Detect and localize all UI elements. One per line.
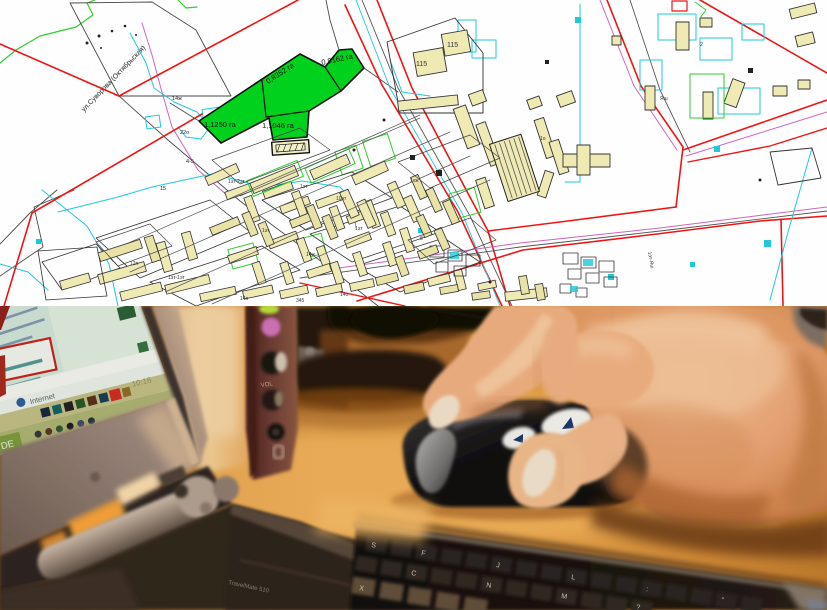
- svg-text:14о: 14о: [340, 292, 349, 298]
- svg-text:8: 8: [420, 236, 423, 242]
- svg-text:1,1250 га: 1,1250 га: [204, 120, 237, 129]
- svg-text:15: 15: [160, 186, 166, 192]
- svg-text:115: 115: [447, 42, 458, 49]
- svg-text:12п: 12п: [130, 261, 139, 267]
- svg-text:Яш: Яш: [660, 96, 668, 102]
- svg-text:14п: 14п: [240, 296, 249, 302]
- svg-text:4-5: 4-5: [186, 159, 194, 165]
- svg-text:22о: 22о: [180, 130, 189, 136]
- svg-text:1эт-2эт: 1эт-2эт: [228, 179, 245, 185]
- svg-text:14ж: 14ж: [172, 96, 182, 102]
- svg-text:115: 115: [416, 61, 427, 68]
- svg-text:1хж: 1хж: [410, 178, 419, 184]
- svg-text:1о: 1о: [540, 136, 546, 142]
- svg-text:14ж: 14ж: [306, 252, 316, 258]
- svg-text:10эт: 10эт: [336, 196, 347, 202]
- svg-text:1эт: 1эт: [355, 226, 363, 232]
- svg-text:2: 2: [700, 42, 703, 48]
- svg-text:1эт: 1эт: [300, 184, 308, 190]
- svg-text:345: 345: [296, 298, 305, 304]
- svg-text:1,1046 га: 1,1046 га: [262, 121, 295, 130]
- svg-text:1эт: 1эт: [262, 228, 270, 234]
- svg-text:1эт-1эт: 1эт-1эт: [168, 275, 185, 281]
